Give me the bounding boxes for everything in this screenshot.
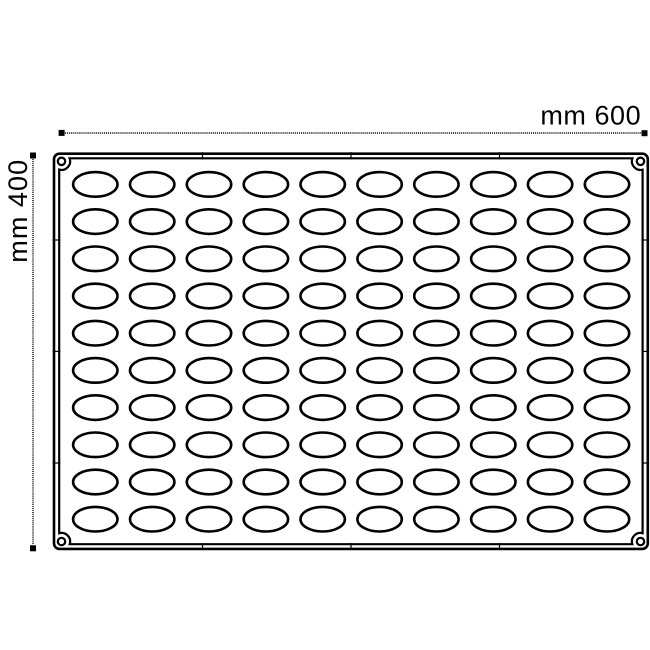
svg-text:mm 600: mm 600 <box>540 101 641 131</box>
svg-text:mm 400: mm 400 <box>3 159 33 263</box>
